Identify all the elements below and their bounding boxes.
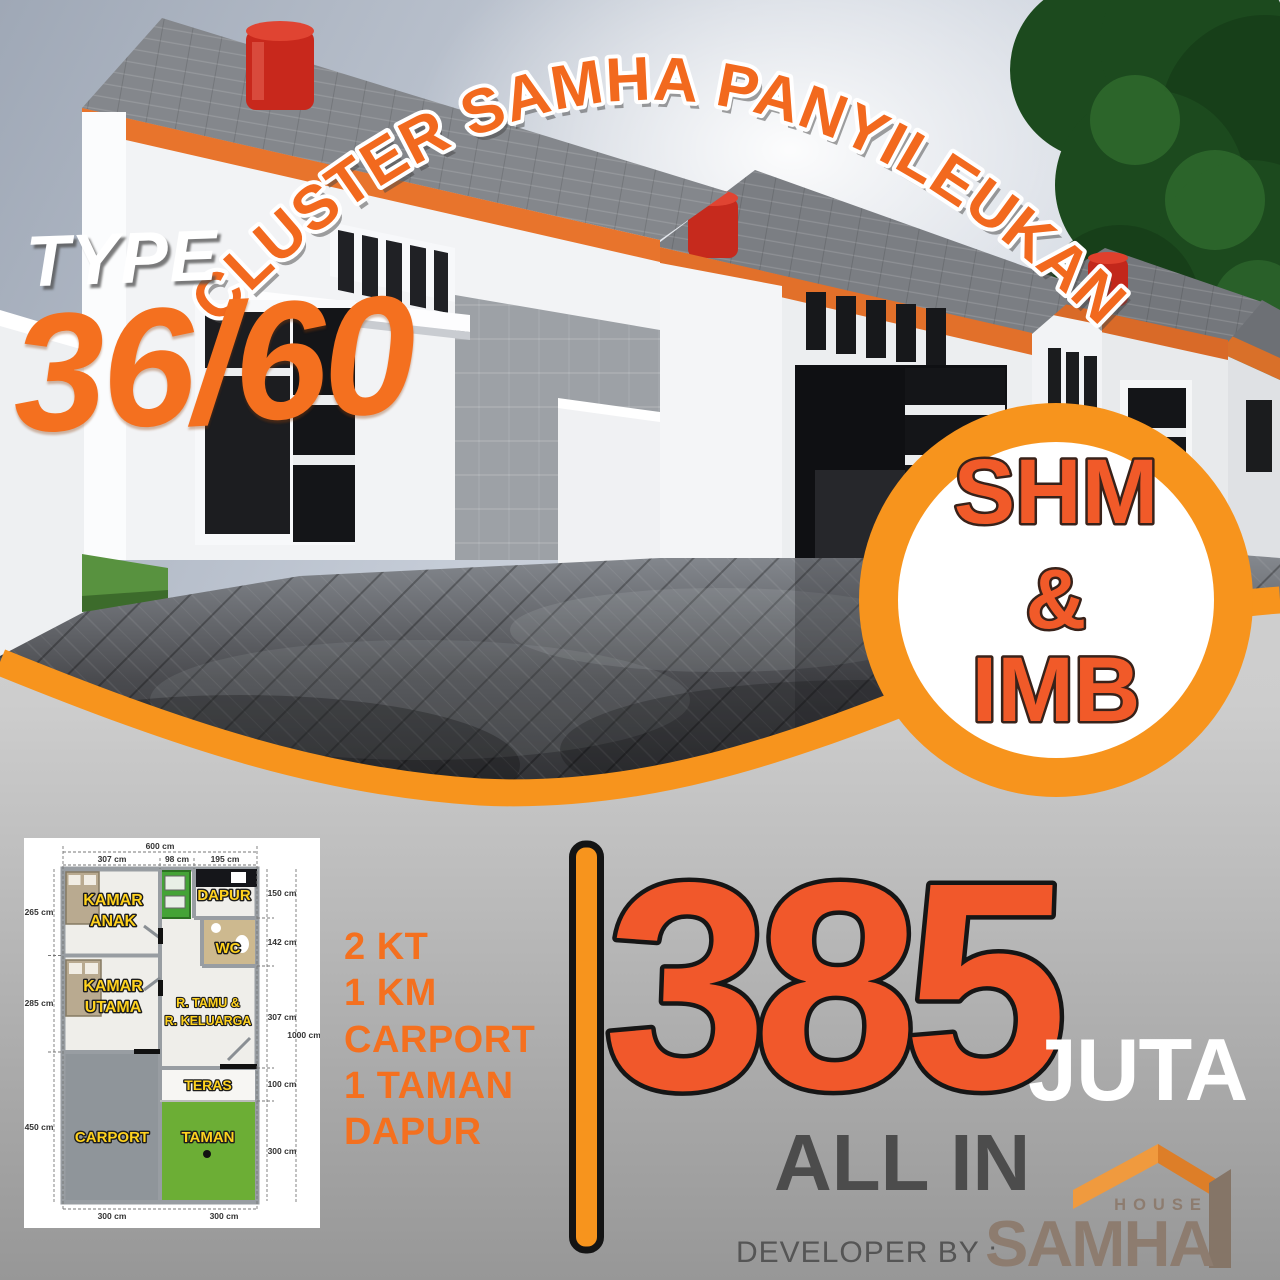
dim-right-total: 1000 cm xyxy=(287,1030,320,1040)
room-kamar-utama-l1: KAMAR xyxy=(83,978,143,995)
dim-left-3: 450 cm xyxy=(25,1122,54,1132)
dim-right-3: 307 cm xyxy=(268,1012,297,1022)
dim-left-1: 265 cm xyxy=(25,907,54,917)
badge-line3: IMB xyxy=(972,639,1141,741)
room-kamar-anak-l1: KAMAR xyxy=(83,892,143,909)
shm-imb-badge: SHM & IMB xyxy=(859,403,1253,797)
dim-top-mid: 98 cm xyxy=(165,854,190,864)
dim-top-total: 600 cm xyxy=(146,841,175,851)
room-kamar-anak-l2: ANAK xyxy=(90,913,137,930)
dim-top-right: 195 cm xyxy=(211,854,240,864)
room-teras: TERAS xyxy=(184,1077,231,1093)
dim-right-2: 142 cm xyxy=(268,937,297,947)
dim-right-5: 300 cm xyxy=(268,1146,297,1156)
feature-item: 1 TAMAN xyxy=(344,1063,535,1109)
feature-item: CARPORT xyxy=(344,1017,535,1063)
price-divider-bar xyxy=(573,844,601,1250)
brand-name: SAMHA xyxy=(985,1207,1214,1280)
dim-right-4: 100 cm xyxy=(268,1079,297,1089)
dim-bottom-right: 300 cm xyxy=(210,1211,239,1221)
room-taman: TAMAN xyxy=(181,1129,234,1146)
room-kamar-utama-l2: UTAMA xyxy=(85,999,142,1016)
feature-item: DAPUR xyxy=(344,1109,535,1155)
price-unit: JUTA xyxy=(1028,1020,1247,1119)
room-wc: WC xyxy=(216,940,241,957)
feature-list: 2 KT 1 KM CARPORT 1 TAMAN DAPUR xyxy=(344,924,535,1156)
dim-top-left: 307 cm xyxy=(98,854,127,864)
feature-item: 1 KM xyxy=(344,970,535,1016)
room-rtamu-l1: R. TAMU & xyxy=(176,996,240,1010)
feature-item: 2 KT xyxy=(344,924,535,970)
carport-floor xyxy=(66,1052,161,1200)
badge-line2: & xyxy=(1026,552,1087,646)
dim-bottom-left: 300 cm xyxy=(98,1211,127,1221)
price-note: ALL IN xyxy=(774,1118,1030,1207)
floor-plan: KAMAR ANAK DAPUR WC KAMAR UTAMA R. TAMU … xyxy=(24,838,320,1228)
price-amount: 385 xyxy=(599,838,1067,1151)
room-rtamu-l2: R. KELUARGA xyxy=(165,1014,252,1028)
badge-line1: SHM xyxy=(954,441,1158,543)
developer-label: DEVELOPER BY : xyxy=(736,1236,998,1269)
price-block: 385 JUTA ALL IN DEVELOPER BY : HOUSE SAM… xyxy=(560,838,1280,1280)
flyer: SHM & IMB CLUSTER SAMHA PANYILEUKAN CLUS… xyxy=(0,0,1280,1280)
dim-right-1: 150 cm xyxy=(268,888,297,898)
room-carport: CARPORT xyxy=(75,1129,149,1146)
type-value: 36/60 xyxy=(8,270,417,459)
dim-left-2: 285 cm xyxy=(25,998,54,1008)
room-dapur: DAPUR xyxy=(197,887,251,904)
